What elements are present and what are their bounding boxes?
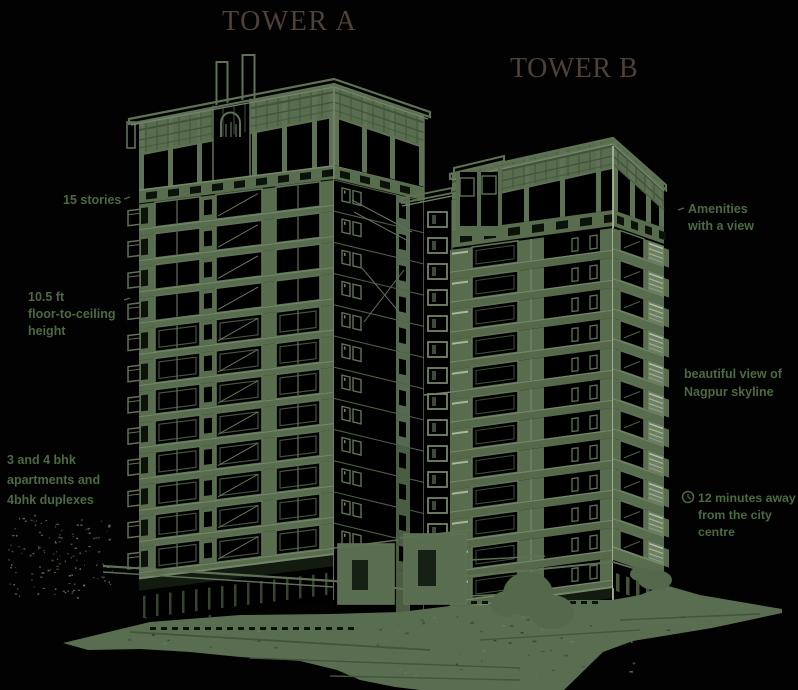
- svg-text:15 stories: 15 stories: [63, 193, 121, 207]
- svg-text:12 minutes away: 12 minutes away: [698, 491, 796, 505]
- svg-text:3 and 4 bhk: 3 and 4 bhk: [7, 453, 76, 467]
- svg-text:from the city: from the city: [698, 508, 772, 522]
- svg-text:apartments and: apartments and: [7, 473, 100, 487]
- svg-text:Amenities: Amenities: [688, 202, 748, 216]
- svg-text:Nagpur skyline: Nagpur skyline: [684, 385, 774, 399]
- svg-text:centre: centre: [698, 525, 735, 539]
- svg-text:TOWER A: TOWER A: [222, 6, 357, 37]
- svg-text:TOWER B: TOWER B: [510, 53, 638, 84]
- svg-text:beautiful view of: beautiful view of: [684, 367, 783, 381]
- svg-text:height: height: [28, 324, 66, 338]
- svg-text:10.5 ft: 10.5 ft: [28, 290, 65, 304]
- svg-text:4bhk duplexes: 4bhk duplexes: [7, 493, 94, 507]
- svg-text:floor-to-ceiling: floor-to-ceiling: [28, 307, 116, 321]
- svg-text:with a view: with a view: [687, 219, 754, 233]
